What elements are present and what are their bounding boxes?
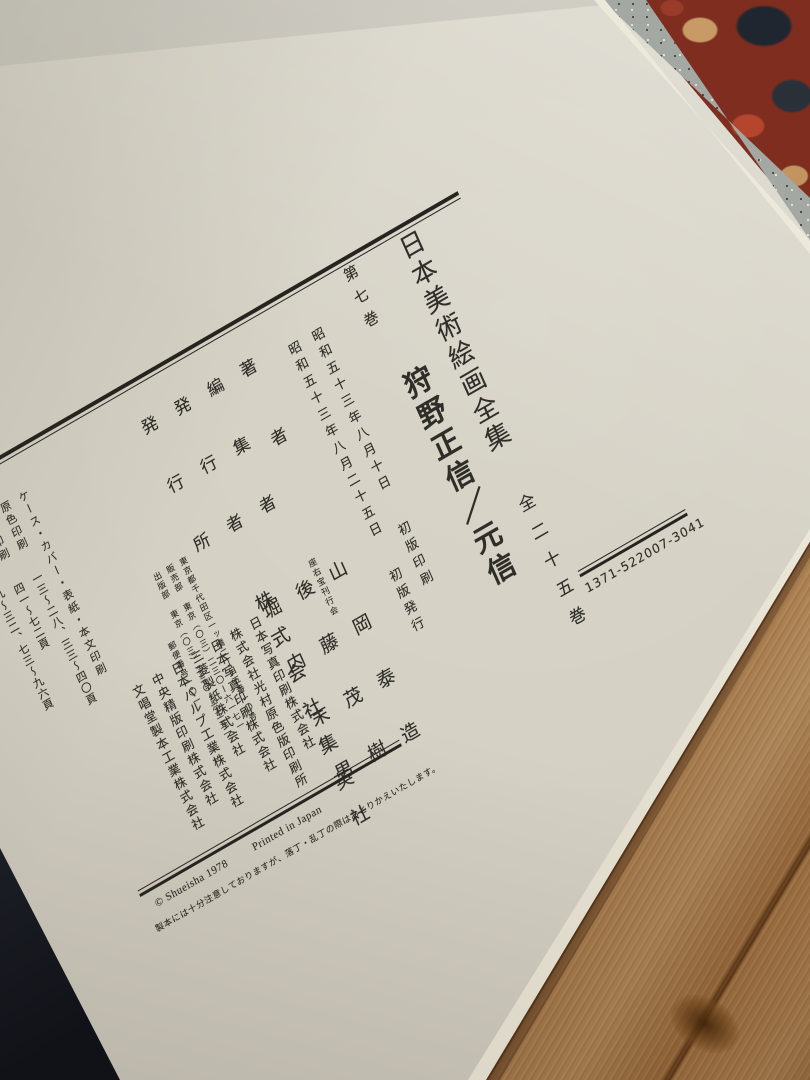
book-colophon-photo: 日本美術絵画全集 全二十五巻 第七巻 狩野正信／元信 昭和五十三年八月十日 初版…	[0, 0, 810, 1080]
volume-label: 第七巻	[339, 263, 383, 340]
product-code-block: 1371-522007-3041	[578, 509, 696, 596]
wood-knot	[660, 982, 750, 1065]
colophon-block: 日本美術絵画全集 全二十五巻 第七巻 狩野正信／元信 昭和五十三年八月十日 初版…	[0, 170, 698, 995]
